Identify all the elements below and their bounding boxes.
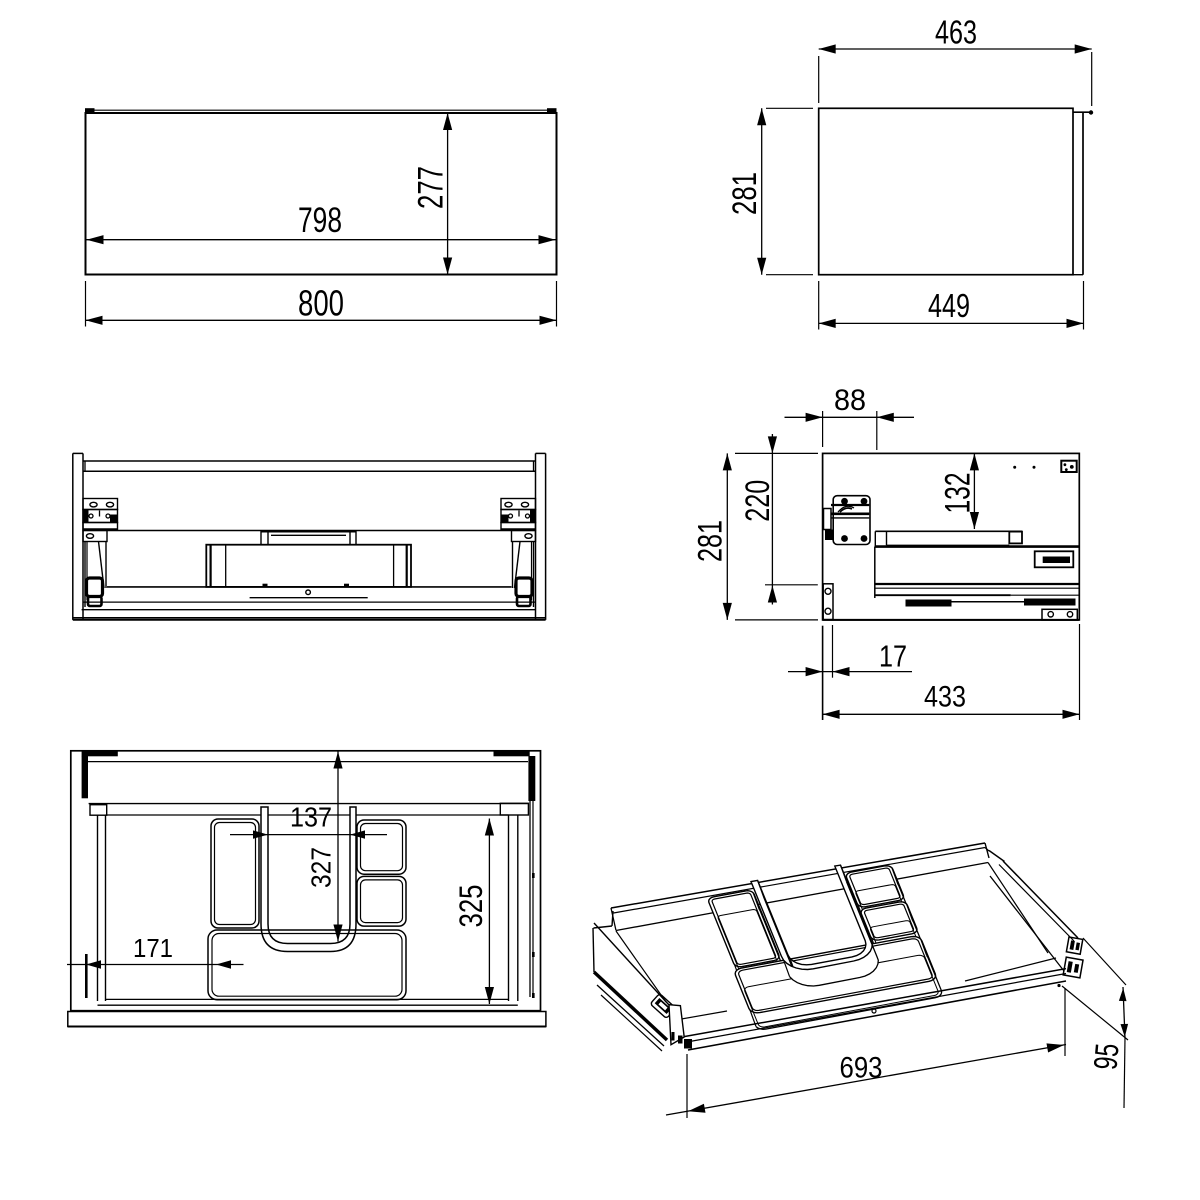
svg-text:132: 132	[939, 473, 978, 514]
svg-text:281: 281	[726, 172, 764, 215]
svg-text:449: 449	[928, 287, 970, 324]
svg-text:95: 95	[1086, 1042, 1125, 1071]
svg-text:693: 693	[840, 1052, 883, 1085]
svg-text:17: 17	[879, 639, 907, 674]
svg-text:220: 220	[739, 480, 777, 522]
svg-text:171: 171	[133, 933, 173, 963]
svg-text:463: 463	[935, 14, 977, 51]
svg-text:281: 281	[692, 520, 730, 562]
svg-text:433: 433	[924, 680, 966, 713]
svg-text:137: 137	[290, 802, 332, 833]
svg-text:325: 325	[453, 885, 489, 928]
svg-text:798: 798	[298, 201, 342, 240]
svg-text:800: 800	[298, 283, 344, 324]
svg-text:327: 327	[306, 847, 337, 888]
svg-text:277: 277	[412, 166, 451, 209]
svg-text:88: 88	[834, 384, 866, 417]
